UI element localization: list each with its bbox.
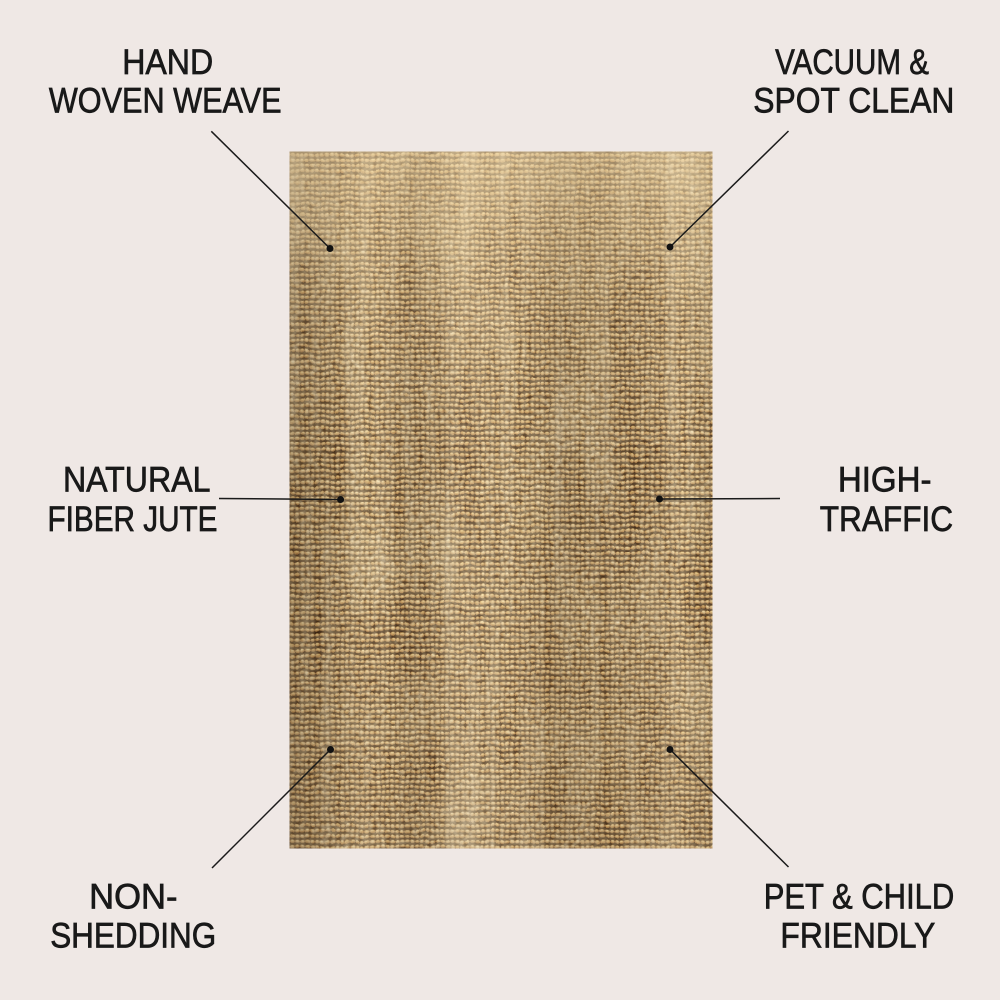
svg-text:FRIENDLY: FRIENDLY <box>780 917 935 956</box>
svg-text:TRAFFIC: TRAFFIC <box>820 501 953 540</box>
svg-text:PET & CHILD: PET & CHILD <box>764 878 955 917</box>
svg-text:HIGH-: HIGH- <box>838 461 932 500</box>
svg-text:HAND: HAND <box>122 44 213 83</box>
svg-text:WOVEN WEAVE: WOVEN WEAVE <box>49 81 282 120</box>
svg-text:FIBER JUTE: FIBER JUTE <box>48 500 218 539</box>
svg-text:NATURAL: NATURAL <box>63 461 211 500</box>
svg-text:NON-: NON- <box>89 878 177 916</box>
svg-text:SPOT CLEAN: SPOT CLEAN <box>753 82 954 121</box>
svg-text:SHEDDING: SHEDDING <box>50 917 216 956</box>
svg-text:VACUUM &: VACUUM & <box>775 43 929 82</box>
